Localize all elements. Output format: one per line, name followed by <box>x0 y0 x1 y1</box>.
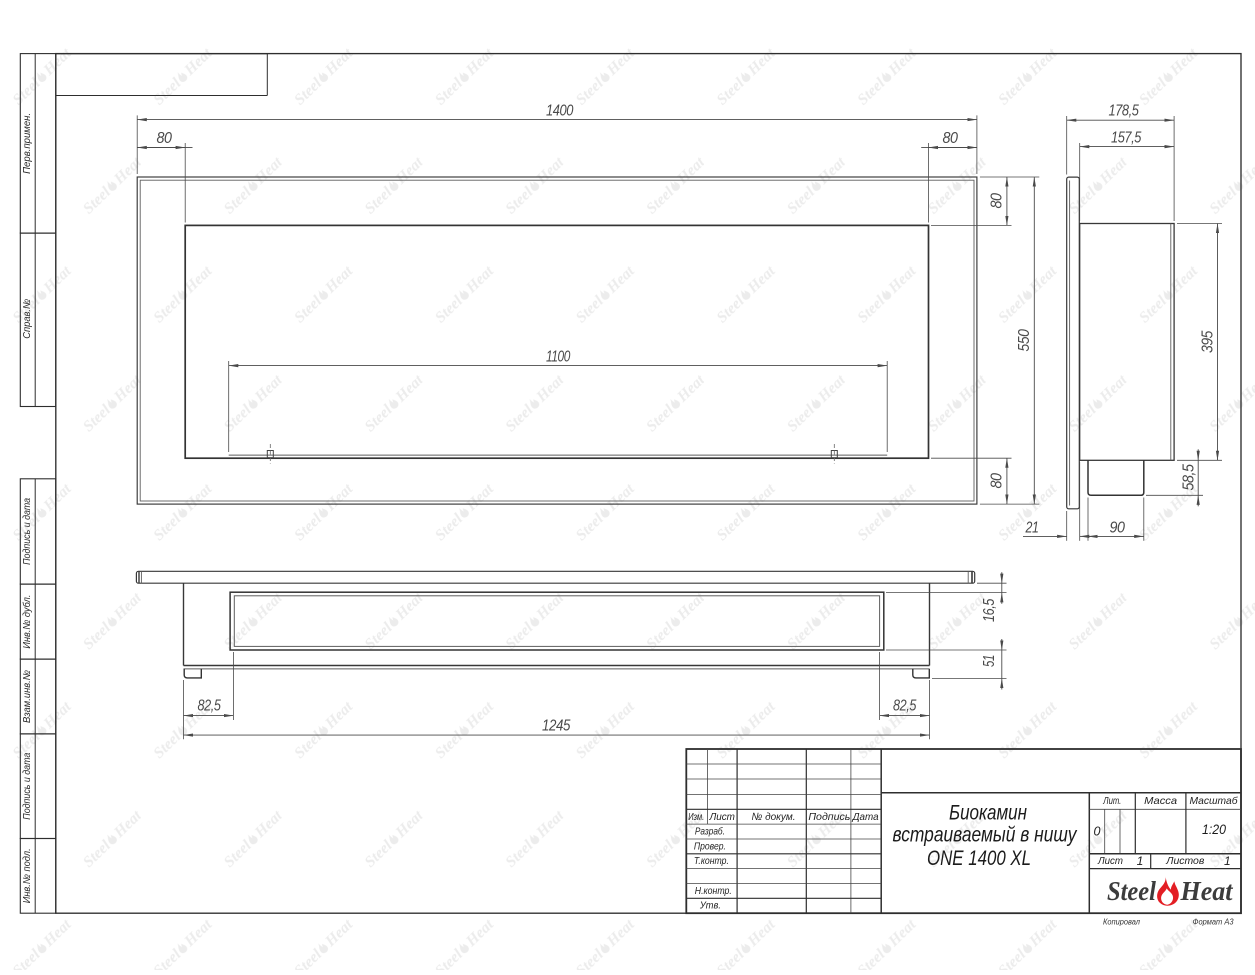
svg-text:80: 80 <box>989 473 1006 489</box>
svg-text:Провер.: Провер. <box>694 840 726 852</box>
svg-text:Инв.№ дубл.: Инв.№ дубл. <box>21 595 33 649</box>
svg-text:1: 1 <box>1224 854 1231 868</box>
svg-text:21: 21 <box>1025 520 1039 537</box>
svg-text:395: 395 <box>1200 330 1217 353</box>
svg-text:Т.контр.: Т.контр. <box>694 855 729 867</box>
svg-text:Взам.инв.№: Взам.инв.№ <box>22 670 33 723</box>
svg-text:Лист: Лист <box>709 811 736 823</box>
svg-text:Перв.примен.: Перв.примен. <box>22 113 33 174</box>
svg-text:Подпись: Подпись <box>808 811 850 823</box>
svg-text:Н.контр.: Н.контр. <box>695 885 732 897</box>
svg-text:встраиваемый в нишу: встраиваемый в нишу <box>893 824 1078 847</box>
svg-text:ONE 1400 XL: ONE 1400 XL <box>927 847 1031 870</box>
svg-text:51: 51 <box>981 655 998 667</box>
svg-text:Формат A3: Формат A3 <box>1193 916 1234 926</box>
svg-text:Steel: Steel <box>1107 876 1156 906</box>
svg-text:157,5: 157,5 <box>1111 130 1142 147</box>
svg-text:58,5: 58,5 <box>1181 464 1198 491</box>
svg-text:Масштаб: Масштаб <box>1190 795 1239 807</box>
svg-text:1100: 1100 <box>546 349 571 366</box>
svg-text:16,5: 16,5 <box>981 598 998 622</box>
svg-text:1: 1 <box>1137 854 1144 868</box>
svg-text:Утв.: Утв. <box>699 900 721 912</box>
svg-text:550: 550 <box>1016 329 1033 352</box>
svg-text:Изм.: Изм. <box>688 811 704 823</box>
svg-text:Справ.№: Справ.№ <box>22 299 33 339</box>
svg-text:Лит.: Лит. <box>1103 795 1122 807</box>
svg-text:№ докум.: № докум. <box>752 811 796 823</box>
svg-text:1400: 1400 <box>546 103 574 120</box>
svg-text:Heat: Heat <box>1180 876 1234 906</box>
svg-text:Биокамин: Биокамин <box>949 802 1027 825</box>
svg-text:Копировал: Копировал <box>1103 916 1140 926</box>
svg-text:Листов: Листов <box>1165 855 1204 867</box>
svg-text:0: 0 <box>1094 825 1101 839</box>
svg-text:Подпись и дата: Подпись и дата <box>22 498 33 565</box>
svg-text:Инв.№ подл.: Инв.№ подл. <box>22 848 33 903</box>
svg-text:80: 80 <box>943 130 959 147</box>
svg-text:Масса: Масса <box>1144 795 1177 807</box>
svg-text:1245: 1245 <box>542 718 571 735</box>
svg-text:80: 80 <box>989 193 1006 209</box>
svg-text:Лист: Лист <box>1097 855 1123 867</box>
svg-text:Дата: Дата <box>852 811 879 823</box>
svg-text:1:20: 1:20 <box>1202 821 1226 837</box>
svg-text:82,5: 82,5 <box>198 698 222 715</box>
svg-text:178,5: 178,5 <box>1109 103 1140 120</box>
svg-text:90: 90 <box>1110 520 1126 537</box>
svg-text:82,5: 82,5 <box>893 698 917 715</box>
svg-text:Подпись и дата: Подпись и дата <box>22 752 33 819</box>
svg-text:80: 80 <box>157 130 173 147</box>
svg-text:Разраб.: Разраб. <box>695 826 725 838</box>
